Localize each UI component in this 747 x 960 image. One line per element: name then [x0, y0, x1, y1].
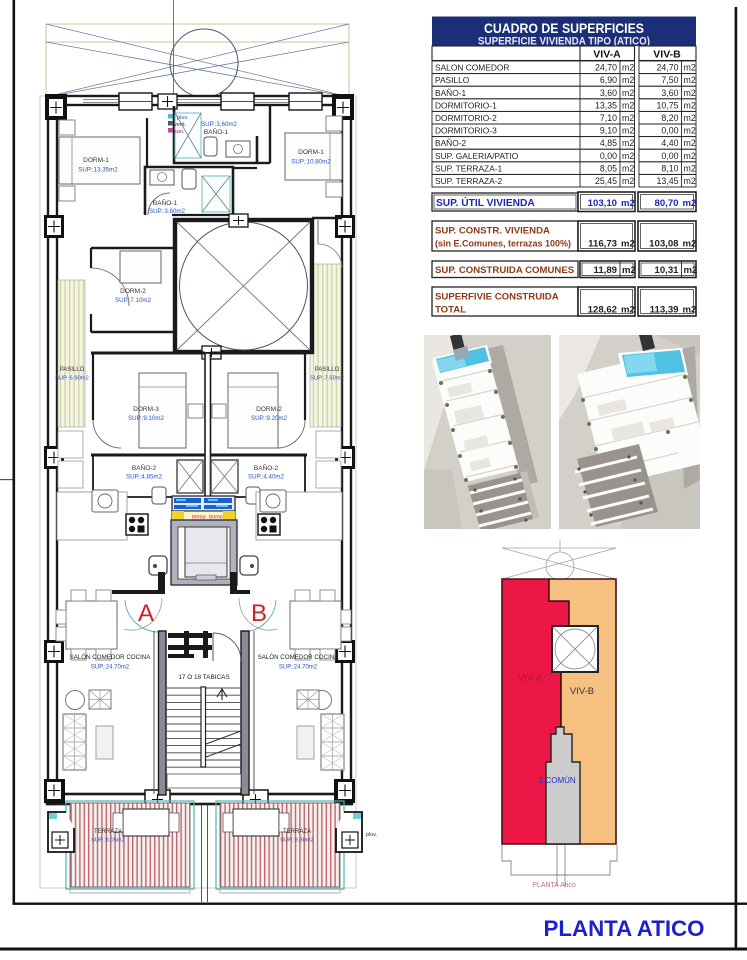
svg-text:SUP.:3,60m2: SUP.:3,60m2: [201, 121, 238, 128]
svg-text:SUP.:7.50m2: SUP.:7.50m2: [310, 376, 344, 382]
svg-text:11,89: 11,89: [594, 265, 617, 276]
svg-text:DORMITORIO-3: DORMITORIO-3: [435, 126, 497, 136]
svg-text:m2: m2: [684, 126, 696, 136]
svg-text:m2: m2: [622, 176, 634, 186]
svg-text:m2: m2: [622, 163, 634, 173]
svg-text:SUP. TERRAZA-2: SUP. TERRAZA-2: [435, 176, 503, 186]
svg-text:0,00: 0,00: [661, 126, 678, 136]
svg-text:7,10: 7,10: [600, 113, 617, 123]
svg-text:m2: m2: [621, 198, 635, 209]
svg-text:m2: m2: [621, 305, 635, 316]
svg-text:80,70: 80,70: [654, 198, 678, 209]
svg-text:VIV-A: VIV-A: [518, 673, 543, 684]
svg-text:m2: m2: [684, 138, 696, 148]
svg-text:4,85: 4,85: [600, 138, 617, 148]
svg-text:103,10: 103,10: [588, 198, 617, 209]
svg-text:m2: m2: [622, 265, 636, 276]
svg-text:BAÑO-2: BAÑO-2: [435, 138, 467, 148]
svg-text:pluv.: pluv.: [177, 115, 189, 121]
svg-text:m2: m2: [683, 305, 697, 316]
svg-text:SUP.:4.40m2: SUP.:4.40m2: [248, 474, 285, 481]
svg-text:VIV-A: VIV-A: [593, 49, 621, 61]
svg-text:SUP.:13.35m2: SUP.:13.35m2: [78, 167, 118, 174]
svg-text:SUP. ÚTIL VIVIENDA: SUP. ÚTIL VIVIENDA: [436, 196, 535, 209]
svg-text:7,50: 7,50: [661, 75, 678, 85]
svg-text:0,00: 0,00: [600, 151, 617, 161]
svg-text:24,70: 24,70: [656, 63, 678, 73]
svg-text:SUP.:8.05m2: SUP.:8.05m2: [91, 838, 125, 844]
svg-text:10,31: 10,31: [654, 265, 679, 276]
svg-text:m2: m2: [684, 151, 696, 161]
svg-text:BAÑO-2: BAÑO-2: [254, 463, 279, 472]
svg-text:m2: m2: [622, 138, 634, 148]
svg-text:SUP. TERRAZA-1: SUP. TERRAZA-1: [435, 163, 503, 173]
svg-text:SUP.:9.10m2: SUP.:9.10m2: [128, 415, 165, 422]
svg-text:DORM-3: DORM-3: [133, 406, 159, 413]
svg-text:128,62: 128,62: [588, 305, 617, 316]
svg-text:SUP. GALERIA/PATIO: SUP. GALERIA/PATIO: [435, 151, 519, 161]
svg-text:113,39: 113,39: [650, 305, 679, 316]
svg-text:DORM-2: DORM-2: [120, 288, 146, 295]
svg-text:SALÓN COMEDOR COCINA: SALÓN COMEDOR COCINA: [258, 654, 340, 661]
svg-text:8,20: 8,20: [661, 113, 678, 123]
svg-text:24,70: 24,70: [595, 63, 617, 73]
svg-text:m2: m2: [622, 88, 634, 98]
svg-text:SUP. CONSTRUIDA COMUNES: SUP. CONSTRUIDA COMUNES: [435, 265, 575, 276]
svg-text:m2: m2: [622, 100, 634, 110]
svg-text:m2: m2: [621, 239, 635, 250]
svg-text:9,10: 9,10: [600, 126, 617, 136]
svg-text:0,00: 0,00: [661, 151, 678, 161]
svg-text:BAÑO-1: BAÑO-1: [435, 88, 467, 98]
svg-text:m2: m2: [684, 163, 696, 173]
svg-text:DORM-2: DORM-2: [256, 406, 282, 413]
svg-text:B: B: [251, 600, 267, 627]
svg-text:m2: m2: [684, 176, 696, 186]
svg-text:Z.COMÚN: Z.COMÚN: [538, 776, 576, 785]
svg-text:SUP. CONSTR. VIVIENDA: SUP. CONSTR. VIVIENDA: [435, 226, 550, 237]
svg-text:3,60: 3,60: [600, 88, 617, 98]
svg-text:DORMITORIO-1: DORMITORIO-1: [435, 100, 497, 110]
svg-text:SUPERFIVIE CONSTRUIDA: SUPERFIVIE CONSTRUIDA: [435, 292, 559, 303]
svg-text:SUP. 6.90m2: SUP. 6.90m2: [55, 376, 89, 382]
svg-text:103,08: 103,08: [649, 239, 679, 250]
svg-text:SUP.:24.70m2: SUP.:24.70m2: [91, 665, 130, 671]
svg-text:pluv.: pluv.: [366, 832, 377, 838]
svg-text:m2: m2: [622, 151, 634, 161]
svg-text:VIV-B: VIV-B: [653, 49, 681, 61]
svg-text:m2: m2: [622, 126, 634, 136]
svg-text:SUP.:7.10m2: SUP.:7.10m2: [115, 297, 152, 304]
svg-text:PASILLO: PASILLO: [435, 75, 470, 85]
svg-text:PLANTA ATICO: PLANTA ATICO: [543, 916, 704, 941]
svg-text:san.: san.: [174, 129, 185, 135]
svg-text:m2: m2: [684, 88, 696, 98]
svg-text:SUP.:24.70m2: SUP.:24.70m2: [279, 665, 318, 671]
svg-text:SUP.:10.80m2: SUP.:10.80m2: [291, 159, 331, 166]
svg-text:DORM-1: DORM-1: [83, 157, 109, 164]
svg-text:13,45: 13,45: [656, 176, 678, 186]
svg-text:BAÑO-2: BAÑO-2: [132, 463, 157, 472]
svg-text:m2: m2: [683, 198, 697, 209]
svg-text:SUP.:9.20m2: SUP.:9.20m2: [251, 415, 288, 422]
svg-text:BAÑO-1: BAÑO-1: [204, 127, 229, 136]
svg-text:m2: m2: [684, 75, 696, 85]
svg-text:PLANTA Atico: PLANTA Atico: [532, 882, 576, 889]
svg-text:8,05: 8,05: [600, 163, 617, 173]
svg-text:VIV-B: VIV-B: [570, 686, 594, 697]
svg-text:m2: m2: [684, 113, 696, 123]
svg-text:SUP.:4.85m2: SUP.:4.85m2: [126, 474, 163, 481]
svg-text:m2: m2: [622, 113, 634, 123]
svg-text:SUP.:3.60m2: SUP.:3.60m2: [149, 208, 186, 215]
svg-text:m2: m2: [622, 63, 634, 73]
svg-text:8,10: 8,10: [661, 163, 678, 173]
svg-text:13,35: 13,35: [595, 100, 617, 110]
svg-text:PASILLO: PASILLO: [60, 367, 85, 373]
svg-text:4,40: 4,40: [661, 138, 678, 148]
svg-text:3,60: 3,60: [661, 88, 678, 98]
svg-text:A: A: [138, 600, 154, 627]
svg-text:m2: m2: [684, 100, 696, 110]
svg-text:BAÑO-1: BAÑO-1: [153, 198, 178, 207]
svg-text:116,73: 116,73: [588, 239, 617, 250]
svg-text:PASILLO: PASILLO: [315, 367, 340, 373]
svg-text:TERRAZA: TERRAZA: [283, 829, 311, 835]
svg-text:(sin E.Comunes, terrazas 100%): (sin E.Comunes, terrazas 100%): [435, 239, 571, 249]
svg-text:DORMITORIO-2: DORMITORIO-2: [435, 113, 497, 123]
svg-text:m2: m2: [684, 63, 696, 73]
svg-text:m2: m2: [684, 265, 698, 276]
svg-text:TOTAL: TOTAL: [435, 305, 466, 316]
svg-text:SUP.:9.30m2: SUP.:9.30m2: [280, 838, 314, 844]
svg-text:DORM-1: DORM-1: [298, 149, 324, 156]
svg-text:SALON COMEDOR: SALON COMEDOR: [435, 63, 509, 73]
svg-text:17 O 18 TABICAS: 17 O 18 TABICAS: [178, 674, 229, 681]
svg-text:vent.: vent.: [174, 122, 187, 128]
svg-text:m2: m2: [683, 239, 697, 250]
svg-text:6,90: 6,90: [600, 75, 617, 85]
svg-text:TERRAZA: TERRAZA: [94, 829, 122, 835]
svg-text:m2: m2: [622, 75, 634, 85]
svg-text:25,45: 25,45: [595, 176, 617, 186]
svg-text:10,75: 10,75: [656, 100, 678, 110]
svg-text:SALÓN COMEDOR COCINA: SALÓN COMEDOR COCINA: [70, 654, 152, 661]
